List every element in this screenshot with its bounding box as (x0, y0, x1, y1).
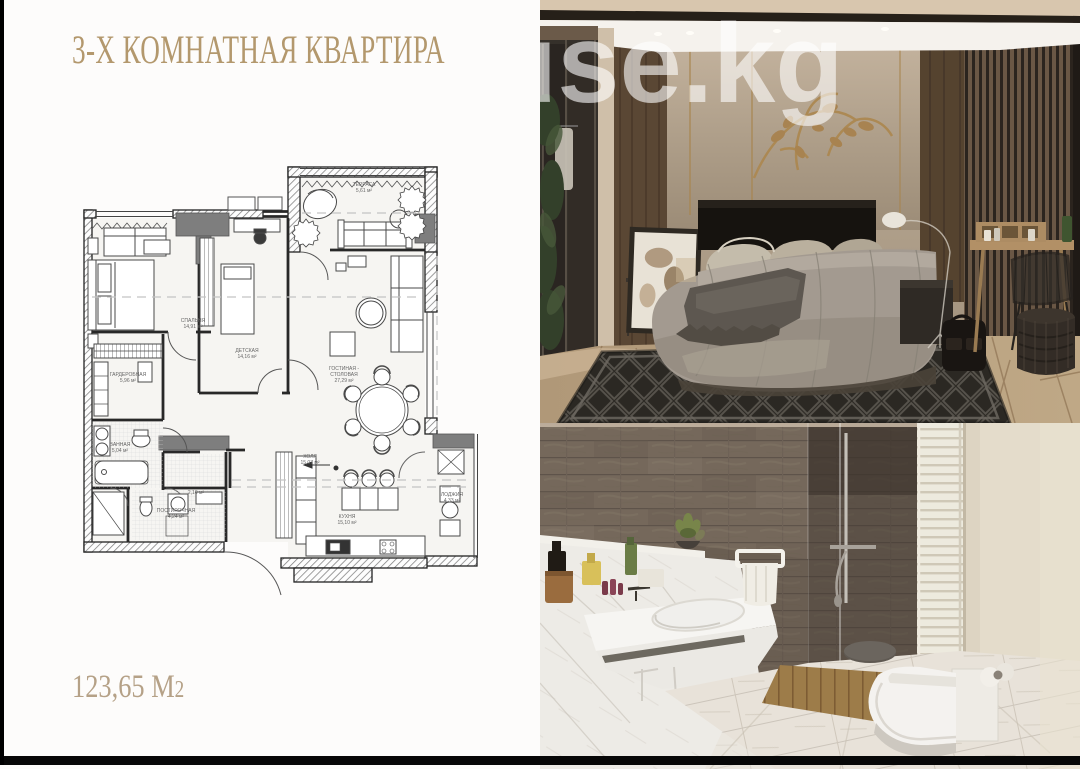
svg-text:14,91 м²: 14,91 м² (183, 324, 202, 330)
svg-text:4,24 м²: 4,24 м² (168, 514, 185, 520)
svg-text:5,96 м²: 5,96 м² (120, 378, 137, 384)
svg-text:4,33 м²: 4,33 м² (444, 498, 461, 504)
svg-text:2,10 м²: 2,10 м² (188, 490, 205, 496)
svg-text:5,04 м²: 5,04 м² (112, 448, 129, 454)
svg-text:5,61 м²: 5,61 м² (356, 188, 373, 194)
svg-text:14,16 м²: 14,16 м² (237, 354, 256, 360)
svg-text:15,10 м²: 15,10 м² (337, 520, 356, 526)
svg-text:15,07 м²: 15,07 м² (300, 460, 319, 466)
svg-text:27,29 м²: 27,29 м² (334, 378, 353, 384)
